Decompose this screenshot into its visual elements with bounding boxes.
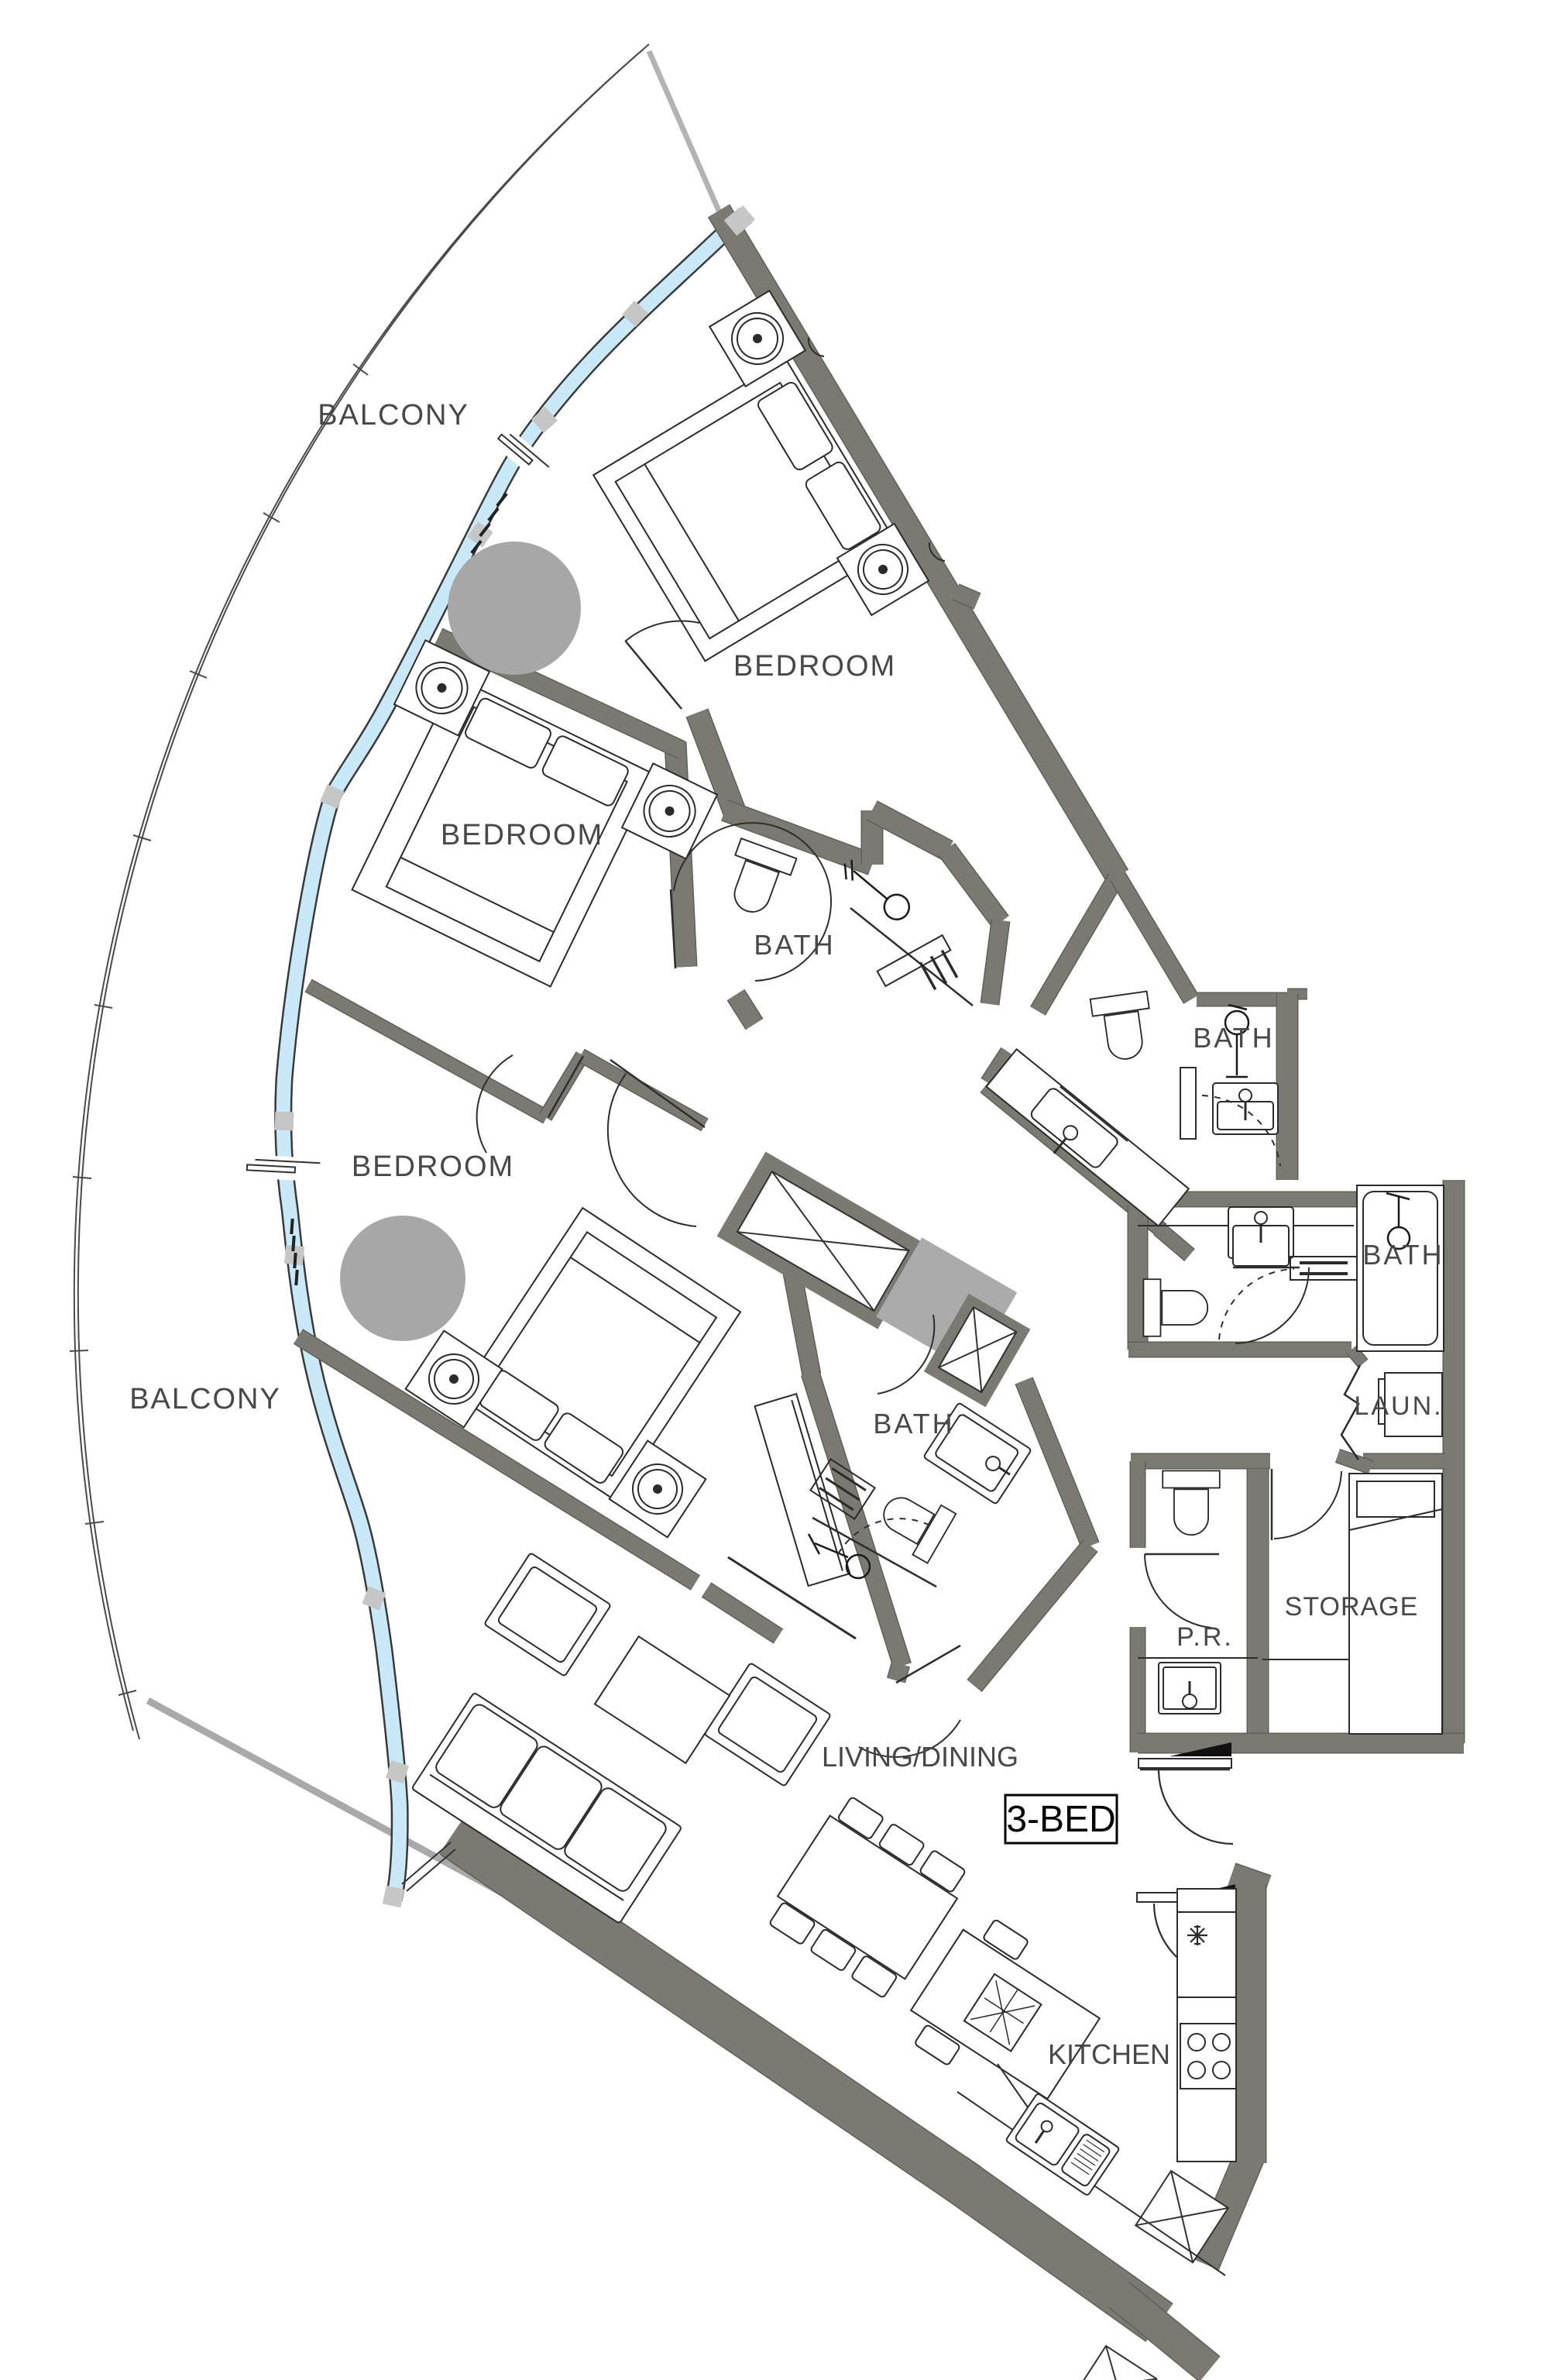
svg-text:BEDROOM: BEDROOM [352, 1150, 514, 1183]
svg-text:BEDROOM: BEDROOM [733, 650, 896, 683]
svg-text:LIVING/DINING: LIVING/DINING [822, 1741, 1018, 1773]
svg-text:KITCHEN: KITCHEN [1048, 2038, 1170, 2070]
svg-text:BEDROOM: BEDROOM [441, 819, 603, 851]
svg-text:BATH: BATH [754, 929, 835, 961]
svg-text:BALCONY: BALCONY [129, 1383, 281, 1415]
svg-text:LAUN.: LAUN. [1354, 1391, 1443, 1421]
svg-text:BATH: BATH [873, 1408, 954, 1439]
svg-text:P.R.: P.R. [1176, 1622, 1234, 1652]
svg-text:STORAGE: STORAGE [1285, 1592, 1419, 1622]
svg-text:BALCONY: BALCONY [318, 399, 469, 432]
svg-text:BATH: BATH [1193, 1022, 1274, 1054]
svg-text:3-BED: 3-BED [1006, 1799, 1115, 1840]
svg-text:BATH: BATH [1362, 1239, 1444, 1271]
